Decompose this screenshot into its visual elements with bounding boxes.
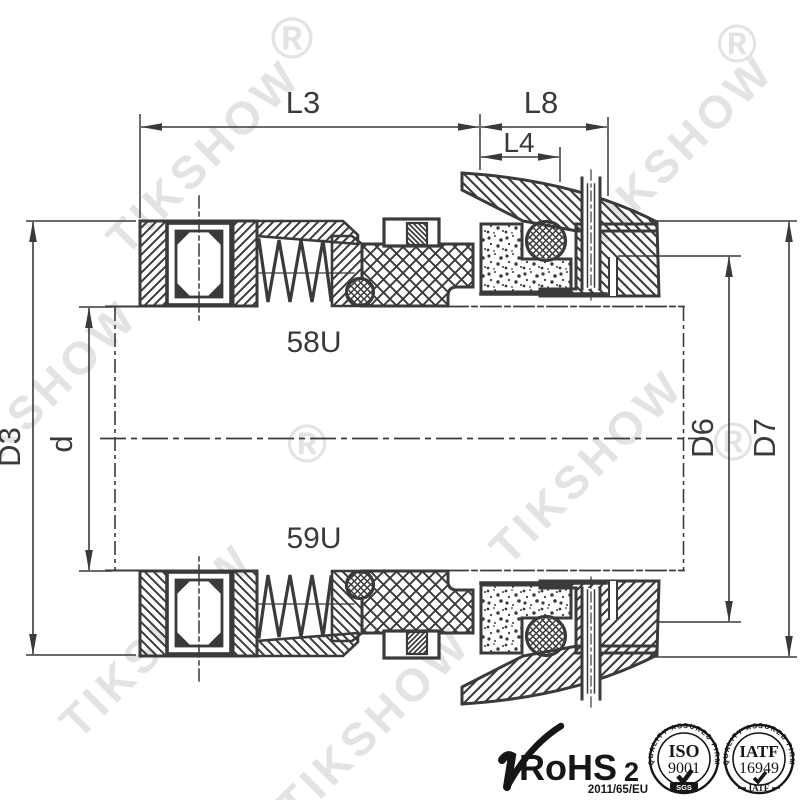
mechanical-seal-drawing-page: TIKSHOW TIKSHOW TIKSHOW TIKSHOW TIKSHOW … bbox=[0, 0, 800, 800]
iso-org: ISO bbox=[668, 741, 699, 761]
watermark-layer: TIKSHOW TIKSHOW TIKSHOW TIKSHOW TIKSHOW … bbox=[0, 6, 784, 800]
rohs2-logo: RoHS 2 2011/65/EU bbox=[502, 726, 648, 796]
dim-label-D7: D7 bbox=[747, 418, 782, 458]
dim-label-L3: L3 bbox=[286, 85, 320, 120]
dim-label-D3: D3 bbox=[0, 427, 27, 467]
iatf16949-badge: QUALITY ASSURED FIRM IATF 16949 IATF bbox=[723, 723, 795, 793]
iatf-footer: IATF bbox=[749, 783, 770, 793]
watermark-text: TIKSHOW bbox=[479, 359, 694, 574]
rohs-suffix: 2 bbox=[624, 757, 639, 787]
iso-footer: SGS bbox=[676, 783, 692, 792]
drive-pin bbox=[407, 223, 427, 245]
iso-number: 9001 bbox=[668, 760, 700, 777]
rohs-directive: 2011/65/EU bbox=[588, 784, 648, 796]
dim-label-L8: L8 bbox=[524, 85, 558, 120]
coil-spring bbox=[259, 240, 331, 302]
registered-mark-watermark: ® bbox=[271, 6, 314, 71]
part-label-59U: 59U bbox=[286, 522, 341, 555]
iatf-number: 16949 bbox=[739, 760, 779, 777]
dim-label-d: d bbox=[44, 435, 79, 452]
dim-label-L4: L4 bbox=[503, 127, 534, 158]
technical-drawing: TIKSHOW TIKSHOW TIKSHOW TIKSHOW TIKSHOW … bbox=[0, 0, 800, 800]
registered-mark-watermark: ® bbox=[287, 414, 327, 474]
gland-step-slot bbox=[609, 258, 617, 296]
part-label-58U: 58U bbox=[286, 326, 341, 359]
iso9001-badge: QUALITY ASSURED FIRM ISO 9001 SGS bbox=[648, 723, 720, 793]
registered-mark-watermark: ® bbox=[717, 14, 757, 74]
spring-retainer-wall bbox=[233, 221, 257, 306]
gland-stud-slot bbox=[582, 170, 600, 300]
rohs-name: RoHS bbox=[519, 747, 617, 788]
iatf-org: IATF bbox=[739, 742, 778, 761]
dim-label-D6: D6 bbox=[685, 418, 720, 458]
watermark-text: TIKSHOW bbox=[0, 289, 148, 504]
shaft-o-ring-hatch bbox=[348, 280, 372, 304]
